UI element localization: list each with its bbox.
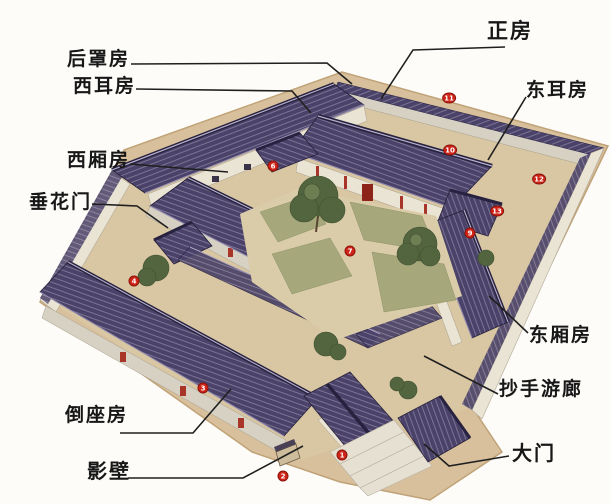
siheyuan-illustration: 后罩房西耳房西厢房垂花门正房东耳房东厢房抄手游廊倒座房影壁大门123467910… xyxy=(0,0,610,504)
courtyard-artwork xyxy=(0,0,610,504)
